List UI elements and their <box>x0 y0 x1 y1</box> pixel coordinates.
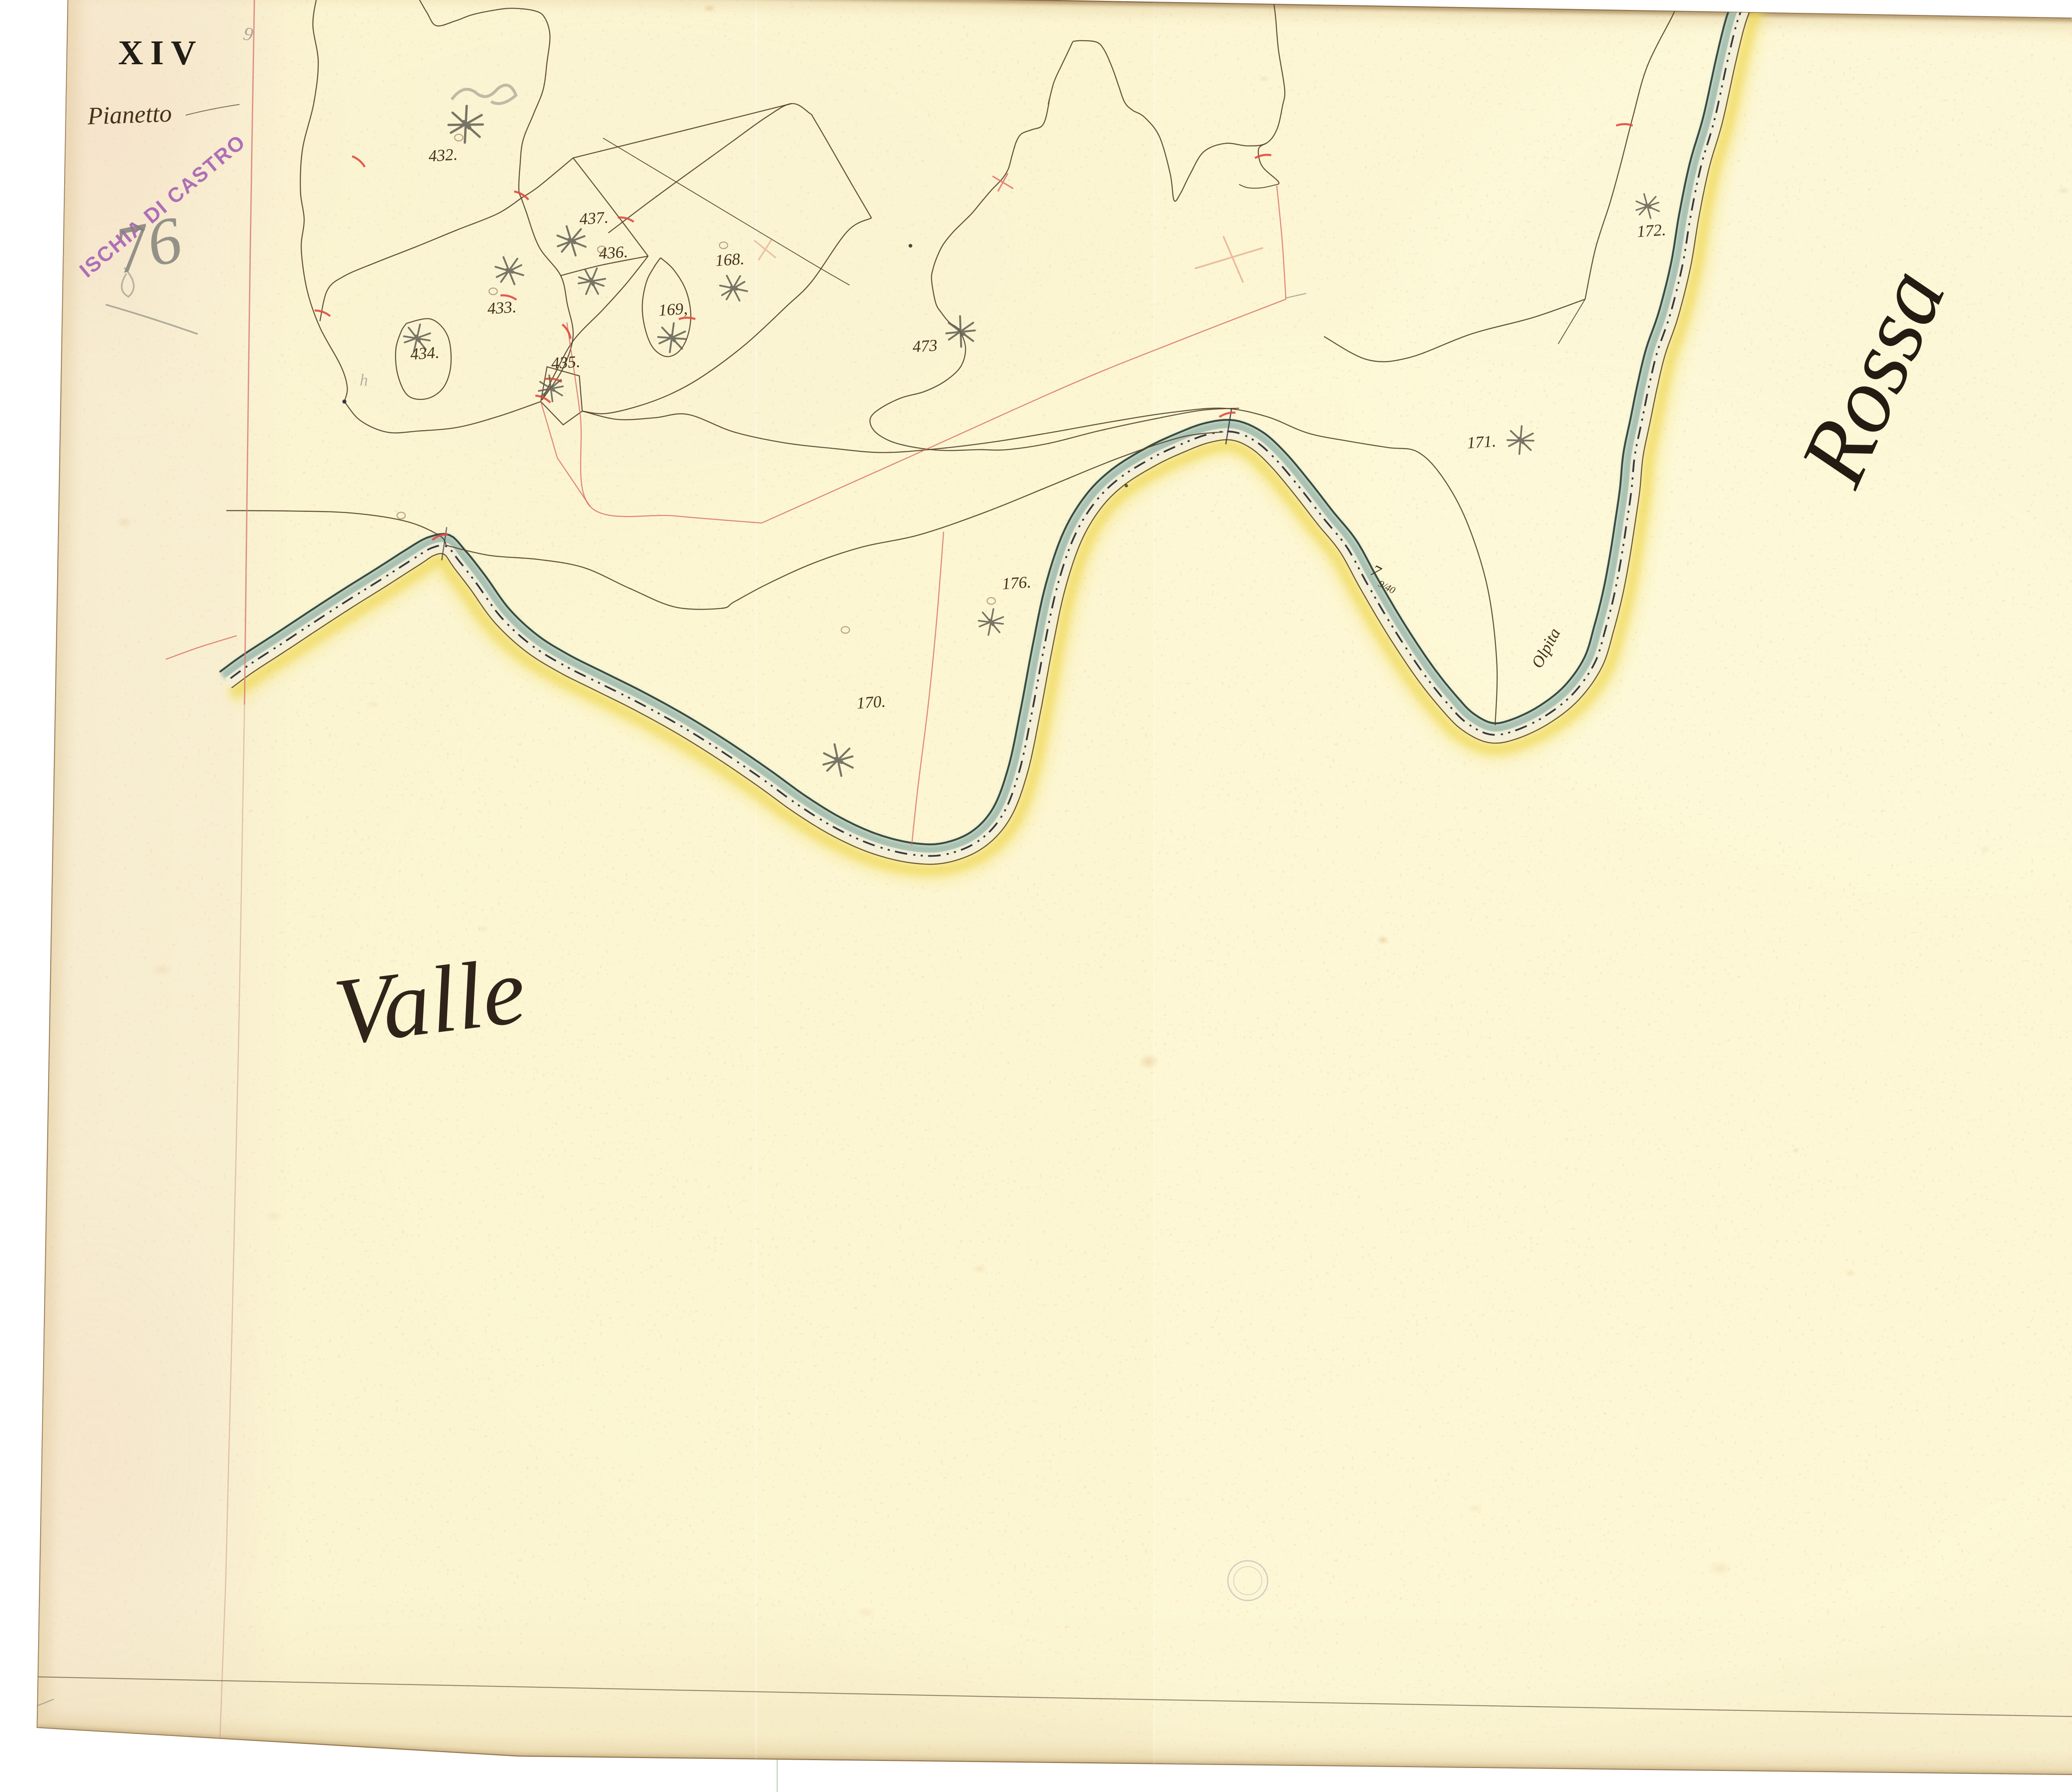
svg-text:h: h <box>360 371 368 389</box>
svg-text:170.: 170. <box>856 692 886 712</box>
svg-text:168.: 168. <box>714 249 745 270</box>
svg-text:176.: 176. <box>1001 572 1031 593</box>
svg-text:XIV: XIV <box>118 34 203 72</box>
svg-text:473: 473 <box>912 336 938 356</box>
svg-text:171.: 171. <box>1466 431 1496 452</box>
svg-text:432.: 432. <box>428 145 458 165</box>
svg-text:437.: 437. <box>579 208 609 228</box>
svg-text:169,: 169, <box>658 299 688 320</box>
svg-text:433.: 433. <box>487 297 517 318</box>
svg-text:436.: 436. <box>598 242 628 263</box>
svg-text:Pianetto: Pianetto <box>87 99 172 130</box>
svg-text:434.: 434. <box>409 343 440 363</box>
svg-text:172.: 172. <box>1636 220 1666 241</box>
svg-text:435.: 435. <box>550 352 581 373</box>
